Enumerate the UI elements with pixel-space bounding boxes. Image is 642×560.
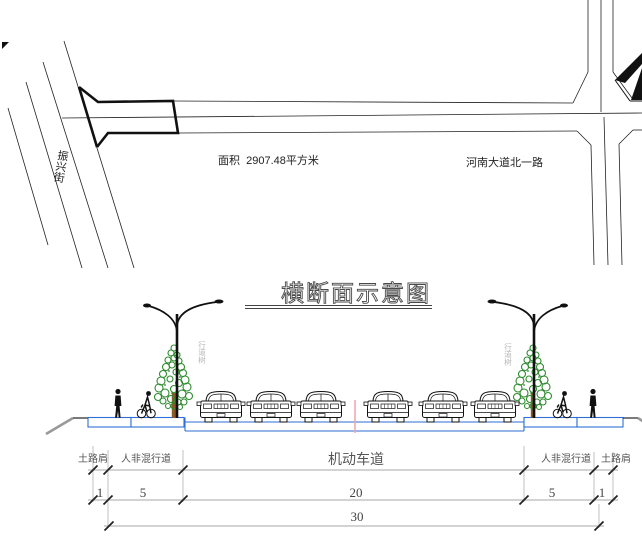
cad-drawing: 振兴街 面积 2907.48平方米 河南大道北一路 <box>0 0 642 560</box>
edge-mark <box>2 42 9 49</box>
tree-icon <box>514 345 552 418</box>
right-sidewalk <box>524 418 623 428</box>
left-sidewalk <box>88 418 184 428</box>
lane-label-motorway: 机动车道 <box>328 451 384 467</box>
dim-value: 5 <box>140 485 147 500</box>
lane-label-shoulder-left: 土路肩 <box>78 452 108 465</box>
car-icon <box>471 392 519 423</box>
right-slope <box>638 418 642 430</box>
left-slope <box>46 418 73 434</box>
lane-label-mixed-left: 人非混行道 <box>121 452 171 465</box>
street-name-label: 振兴街 <box>51 148 69 185</box>
cyclist-icon <box>137 391 155 418</box>
tree-label: 行道树 <box>197 340 206 365</box>
cross-road-lines <box>588 0 642 265</box>
cyclist-icon <box>553 391 571 418</box>
car-icon <box>197 392 245 423</box>
cad-drawing-canvas: 振兴街 面积 2907.48平方米 河南大道北一路 <box>0 0 642 560</box>
car-icon <box>297 392 345 423</box>
dim-value: 1 <box>599 485 606 500</box>
diagonal-street-lines <box>8 41 134 268</box>
dim-value: 20 <box>350 485 363 500</box>
car-icon <box>419 392 467 423</box>
plan-view: 振兴街 面积 2907.48平方米 河南大道北一路 <box>2 0 642 268</box>
pedestrian-icon <box>115 389 122 418</box>
car-icon <box>364 392 412 423</box>
car-icon <box>247 392 295 423</box>
dim-value: 5 <box>549 485 556 500</box>
road-name-label: 河南大道北一路 <box>466 155 543 169</box>
lane-label-shoulder-right: 土路肩 <box>601 452 631 465</box>
tree-label: 行道树 <box>503 342 512 367</box>
lane-label-mixed-right: 人非混行道 <box>541 452 591 465</box>
section-title: 横断面示意图 <box>281 280 431 306</box>
cross-section-view: 横断面示意图 <box>46 280 642 531</box>
dim-value: 1 <box>97 485 104 500</box>
dimension-system: 土路肩 人非混行道 机动车道 人非混行道 土路肩 1 5 20 5 1 30 <box>78 446 631 531</box>
area-label: 面积 2907.48平方米 <box>218 153 319 167</box>
pedestrian-icon <box>590 389 597 418</box>
dim-total-value: 30 <box>351 509 364 524</box>
title-underline <box>245 306 432 309</box>
tree-icon <box>155 345 193 418</box>
